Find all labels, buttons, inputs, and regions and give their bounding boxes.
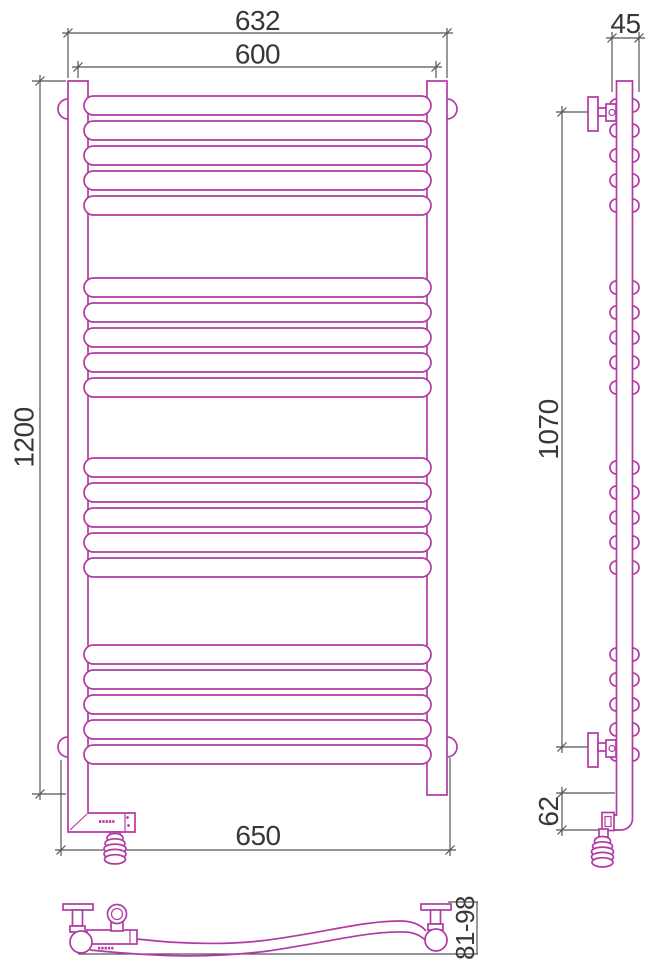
dim-width-centers: 600	[72, 39, 442, 79]
rung	[84, 483, 431, 502]
led-dash	[98, 947, 100, 950]
led-dash	[111, 947, 113, 950]
rung	[84, 645, 431, 664]
led-dash	[102, 820, 104, 823]
bracket-stem	[431, 910, 441, 924]
dim-label-62: 62	[533, 796, 564, 826]
bottom-left-bracket	[63, 904, 93, 932]
dim-label-1070: 1070	[533, 399, 564, 459]
rung	[84, 695, 431, 714]
rung	[84, 96, 431, 115]
front-view	[58, 81, 457, 864]
technical-drawing: 632 600 1200 650	[0, 0, 656, 970]
led-dash	[109, 820, 111, 823]
wave-tube-bottom-edge	[90, 932, 428, 956]
rung	[84, 533, 431, 552]
drawing-canvas: 632 600 1200 650	[0, 0, 656, 970]
bottom-view	[63, 904, 451, 956]
led-dash	[106, 820, 108, 823]
bracket-plate	[588, 97, 598, 131]
rung	[84, 328, 431, 347]
power-cable-coil-side	[592, 837, 614, 867]
dim-height-overall: 1200	[9, 75, 67, 800]
right-post	[427, 81, 447, 795]
rung	[84, 121, 431, 140]
dim-label-650: 650	[235, 820, 280, 851]
rung	[84, 303, 431, 322]
heater-indicator-dot	[126, 816, 129, 819]
post-end-right	[425, 929, 447, 951]
cable-gland-outer	[108, 905, 127, 924]
bracket-plate	[63, 904, 93, 910]
bracket-stem	[73, 910, 83, 926]
led-dash	[105, 947, 107, 950]
dim-side-mount-height: 1070	[533, 106, 590, 753]
dim-label-81-98: 81-98	[450, 896, 480, 960]
bottom-fitting	[602, 813, 614, 831]
wave-tube-top-edge	[93, 921, 426, 943]
led-dash	[108, 947, 110, 950]
rung	[84, 720, 431, 739]
side-tube	[603, 81, 633, 830]
bracket-plate	[421, 904, 451, 910]
rung	[84, 745, 431, 764]
dim-side-depth: 45	[606, 8, 645, 92]
side-view	[588, 81, 639, 867]
heater-led-dashes-bottom	[98, 947, 114, 950]
led-dash	[99, 820, 101, 823]
led-dash	[101, 947, 103, 950]
bracket-plate	[588, 733, 598, 767]
coil-loop	[592, 858, 613, 867]
coil-loop	[105, 855, 126, 864]
rung	[84, 146, 431, 165]
led-dash	[112, 820, 114, 823]
rung	[84, 278, 431, 297]
rung	[84, 196, 431, 215]
front-rungs	[84, 96, 431, 764]
rung	[84, 670, 431, 689]
rung	[84, 171, 431, 190]
power-cable-coil-front	[104, 834, 126, 864]
rung	[84, 378, 431, 397]
side-bottom-bracket	[588, 733, 616, 767]
dim-label-45: 45	[610, 8, 640, 39]
dim-label-1200: 1200	[9, 407, 40, 467]
dim-label-632: 632	[235, 5, 280, 36]
rung	[84, 353, 431, 372]
dim-depth-range: 81-98	[78, 896, 480, 960]
rung	[84, 458, 431, 477]
rung	[84, 508, 431, 527]
bottom-right-bracket	[421, 904, 451, 930]
dim-label-600: 600	[235, 39, 280, 70]
heater-indicator-dot	[127, 824, 130, 827]
post-end-left	[70, 931, 92, 953]
rung	[84, 558, 431, 577]
